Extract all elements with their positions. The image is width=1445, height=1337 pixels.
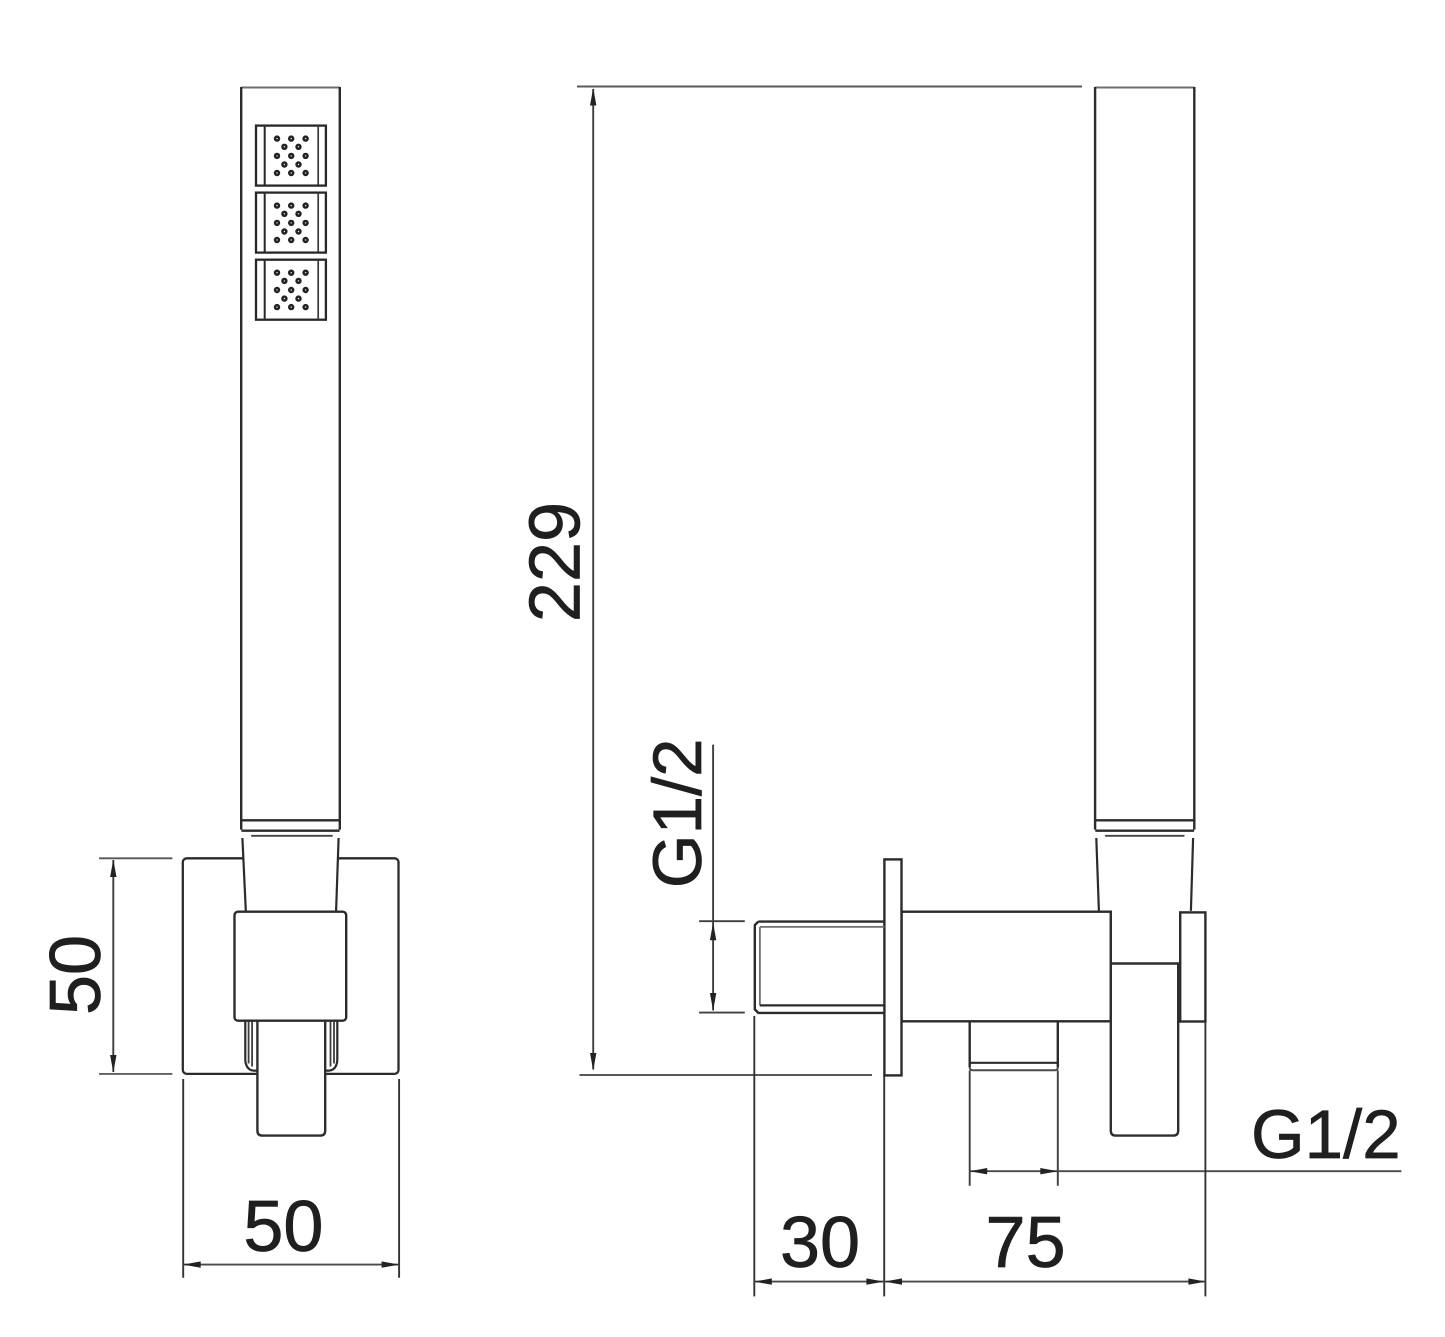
svg-text:229: 229 — [516, 502, 596, 622]
svg-text:30: 30 — [780, 1203, 860, 1283]
svg-text:50: 50 — [36, 935, 116, 1015]
svg-text:G1/2: G1/2 — [639, 739, 716, 889]
svg-text:50: 50 — [243, 1187, 323, 1267]
svg-text:75: 75 — [986, 1203, 1066, 1283]
svg-text:G1/2: G1/2 — [1251, 1096, 1401, 1173]
